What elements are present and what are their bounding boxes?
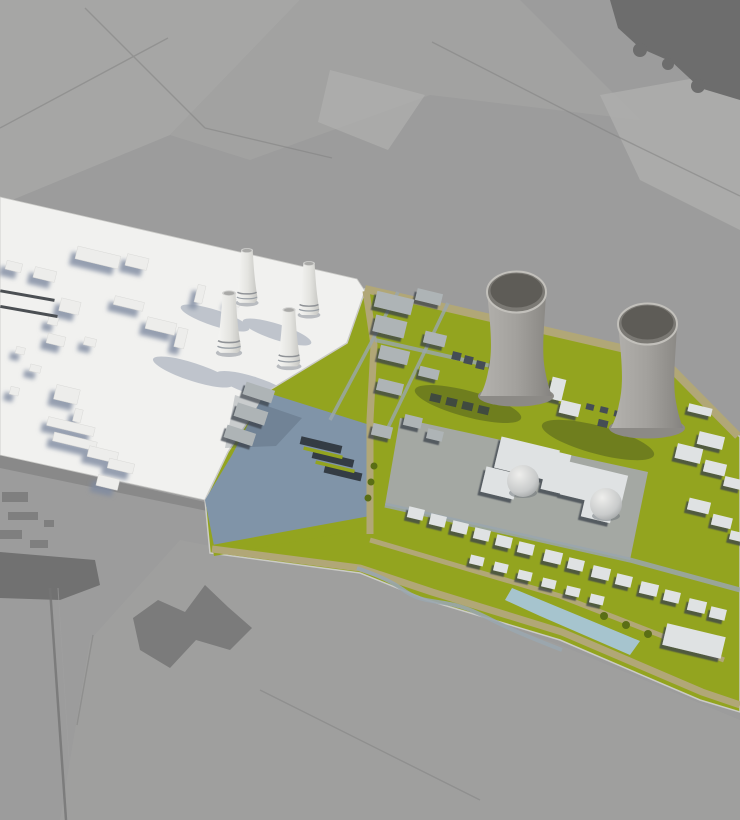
forest-edge (662, 58, 674, 70)
render-canvas (0, 0, 740, 820)
containment-dome-1 (507, 465, 539, 497)
forest-edge (633, 43, 647, 57)
containment-dome-2 (590, 488, 622, 520)
forest-edge (691, 79, 705, 93)
aerial-visualization (0, 0, 740, 820)
